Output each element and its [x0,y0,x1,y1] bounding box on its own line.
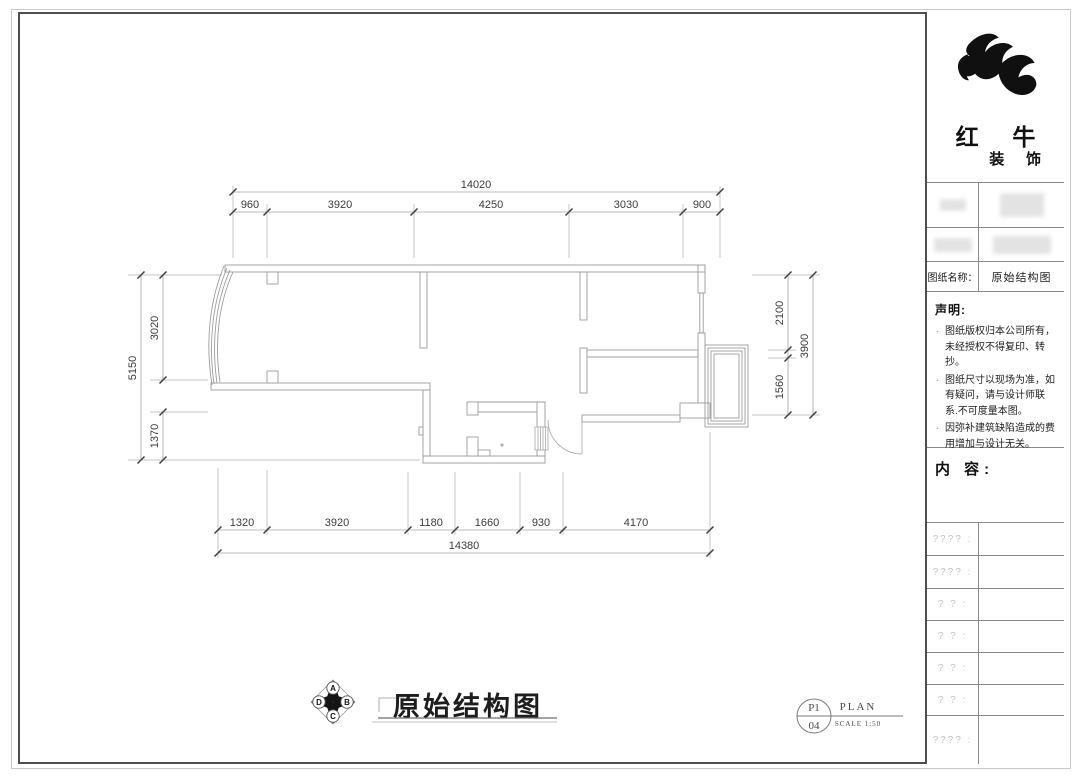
compass-letter-d: D [316,698,322,707]
dim-bottom-seg: 4170 [624,517,648,529]
field-row: ???? : [927,523,1064,556]
dim-bottom-seg: 1180 [419,517,443,529]
field-row: ? ? : [927,685,1064,716]
drawing-sheet: 14020 960 3920 4250 3030 900 5150 3020 1… [0,0,1080,776]
field-row: ? ? : [927,653,1064,685]
sheet-reference: P1 04 PLAN SCALE 1:50 [797,699,903,733]
bull-logo-icon [941,30,1049,114]
compass-letter-b: B [344,698,350,707]
floor-plan-canvas: 14020 960 3920 4250 3030 900 5150 3020 1… [0,0,1080,776]
redacted-text [1000,193,1044,217]
field-label: ? ? : [927,589,979,620]
dim-bottom-total: 14380 [449,540,480,552]
field-value [979,523,1064,555]
dimension-ticks [138,189,817,557]
entry-door [535,420,582,454]
brand-subname: 装 饰 [989,148,1050,169]
statement-title: 声明: [935,301,1056,318]
dim-bottom-seg: 1320 [230,517,254,529]
field-label: ???? : [927,523,979,555]
dim-bottom-seg: 930 [532,517,550,529]
content-box: 内 容: [927,448,1064,523]
field-row: ???? : [927,716,1064,764]
info-row-redacted [927,183,1064,228]
redacted-text [934,238,972,252]
drawing-name-value: 原始结构图 [979,262,1064,291]
sheet-type: PLAN [840,701,877,713]
field-value [979,653,1064,684]
right-window-glazing [698,293,705,333]
redacted-text [993,236,1051,254]
compass-symbol: A B C D [311,680,355,724]
field-value [979,716,1064,764]
info-row-redacted [927,228,1064,262]
dim-right-total: 3900 [799,334,811,358]
field-value [979,556,1064,588]
field-row: ???? : [927,556,1064,589]
dim-left-seg: 1370 [149,424,161,448]
bathroom-top-wall [467,402,545,412]
drawing-name-label: 图纸名称： [927,262,979,291]
brand-logo-box: 红 牛 装 饰 [927,12,1064,183]
dim-right-seg: 1560 [774,375,786,399]
field-label: ? ? : [927,653,979,684]
dim-left-total: 5150 [127,356,139,380]
compass-letter-a: A [330,684,336,693]
field-label: ? ? : [927,685,979,715]
dim-top-seg: 3030 [614,199,638,211]
dim-bottom-seg: 1660 [475,517,499,529]
sheet-number-top: P1 [808,702,820,714]
field-value [979,589,1064,620]
dimension-lines [141,192,813,553]
door-jamb [535,427,548,450]
redacted-text [940,199,966,211]
dim-bottom-seg: 3920 [325,517,349,529]
field-label: ???? : [927,716,979,764]
compass-letter-c: C [330,712,336,721]
dim-top-seg: 960 [241,199,259,211]
field-row: ? ? : [927,621,1064,653]
field-label: ???? : [927,556,979,588]
sheet-scale: SCALE 1:50 [835,720,881,728]
field-value [979,621,1064,652]
brand-name: 红 牛 [927,118,1064,152]
title-strip: 红 牛 装 饰 图纸名称： 原始结构图 声明: 图纸版权归本公司所有，未经授权不… [925,12,1064,764]
floor-drain [500,443,503,446]
dim-right-seg: 2100 [774,301,786,325]
dim-top-total: 14020 [461,179,492,191]
balcony [705,345,748,427]
statement-item: 图纸版权归本公司所有，未经授权不得复印、转抄。 [935,324,1056,371]
drawing-name-row: 图纸名称： 原始结构图 [927,262,1064,292]
drawing-title: 原始结构图 [393,691,543,722]
sheet-number-bottom: 04 [809,720,821,732]
content-label: 内 容: [935,458,1056,479]
statement-box: 声明: 图纸版权归本公司所有，未经授权不得复印、转抄。 图纸尺寸以现场为准，如有… [927,292,1064,448]
field-row: ? ? : [927,589,1064,621]
dim-top-seg: 4250 [479,199,503,211]
bay-window-glazing [209,266,224,385]
statement-item: 图纸尺寸以现场为准，如有疑问，请与设计师联系.不可度量本图。 [935,373,1056,420]
walls [209,265,748,463]
field-value [979,685,1064,715]
drawing-title-block: 原始结构图 [372,691,557,722]
field-label: ? ? : [927,621,979,652]
dim-top-seg: 3920 [328,199,352,211]
extension-lines [128,186,820,558]
door-swing-arc [548,420,582,454]
dim-top-seg: 900 [693,199,711,211]
dim-left-seg: 3020 [149,316,161,340]
